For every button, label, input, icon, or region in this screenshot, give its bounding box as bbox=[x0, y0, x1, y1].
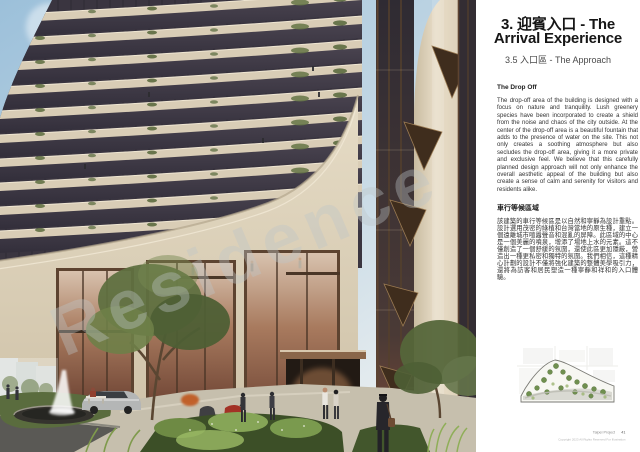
footer-page-number: 41 bbox=[621, 431, 625, 435]
orange-sculpture bbox=[181, 394, 199, 406]
footer-line1: Taipei Project41 bbox=[542, 431, 625, 435]
approach-zh-heading: 車行等候區域 bbox=[497, 203, 638, 213]
page-title: 3. 迎賓入口 - The Arrival Experience bbox=[480, 18, 636, 46]
drop-off-heading: The Drop Off bbox=[497, 84, 638, 91]
drop-off-paragraph: The drop-off area of the building is des… bbox=[497, 98, 638, 194]
page-subtitle: 3.5 入口區 - The Approach bbox=[476, 53, 640, 66]
site-plan-diagram bbox=[517, 346, 618, 408]
architectural-render bbox=[0, 0, 477, 452]
approach-zh-paragraph: 該建築的車行等候區是以自然和寧靜為設計重點。設計選用茂密的綠植和台灣當地的原生種… bbox=[497, 218, 638, 281]
page-title-line2: Arrival Experience bbox=[480, 32, 636, 46]
footer-project: Taipei Project bbox=[592, 431, 614, 435]
page-footer: Taipei Project41 Copyright 2023 All Righ… bbox=[491, 430, 625, 443]
body-column: The Drop Off The drop-off area of the bu… bbox=[497, 84, 638, 281]
footer-copyright: Copyright 2023 All Rights Reserved For I… bbox=[558, 439, 625, 442]
presentation-page: Residence 3. 迎賓入口 - The Arrival Experien… bbox=[0, 0, 640, 452]
tower bbox=[0, 0, 477, 452]
text-panel: 3. 迎賓入口 - The Arrival Experience 3.5 入口區… bbox=[476, 0, 640, 452]
